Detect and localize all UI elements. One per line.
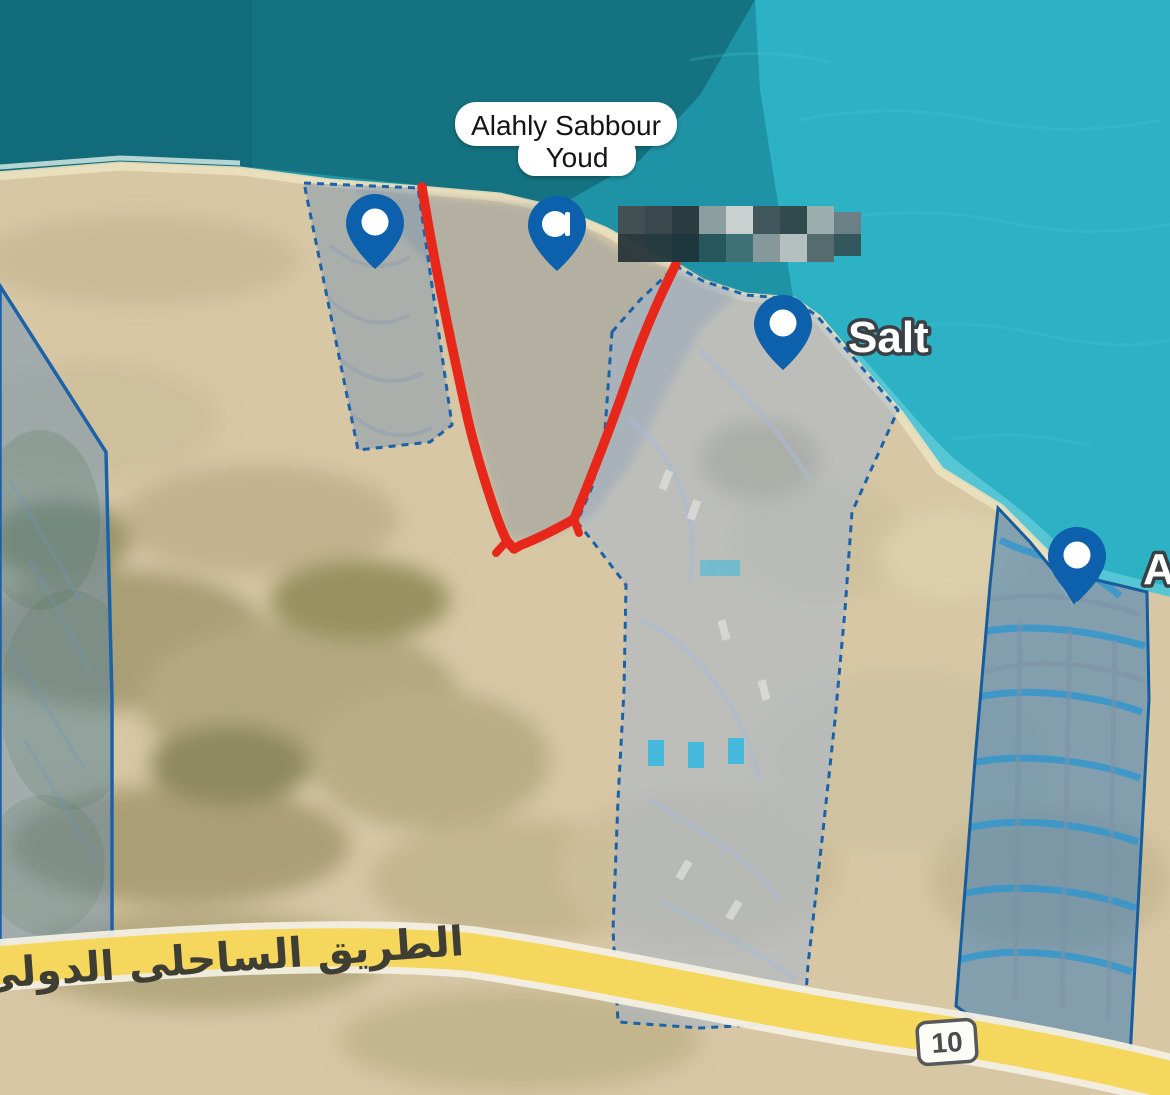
route-badge-number: 10 [930, 1026, 963, 1059]
callout-line1: Alahly Sabbour [471, 110, 661, 141]
satellite-map[interactable]: الطريق الساحلى الدولى 10 [0, 0, 1170, 1095]
pixelated-redaction [618, 206, 861, 262]
place-label-salt: Salt [848, 313, 929, 362]
callout-line2: Youd [546, 142, 609, 173]
place-label-partial: A [1143, 545, 1170, 594]
sea-darkest-corner [0, 0, 252, 170]
route-badge: 10 [917, 1019, 978, 1065]
map-canvas: الطريق الساحلى الدولى 10 [0, 0, 1170, 1095]
